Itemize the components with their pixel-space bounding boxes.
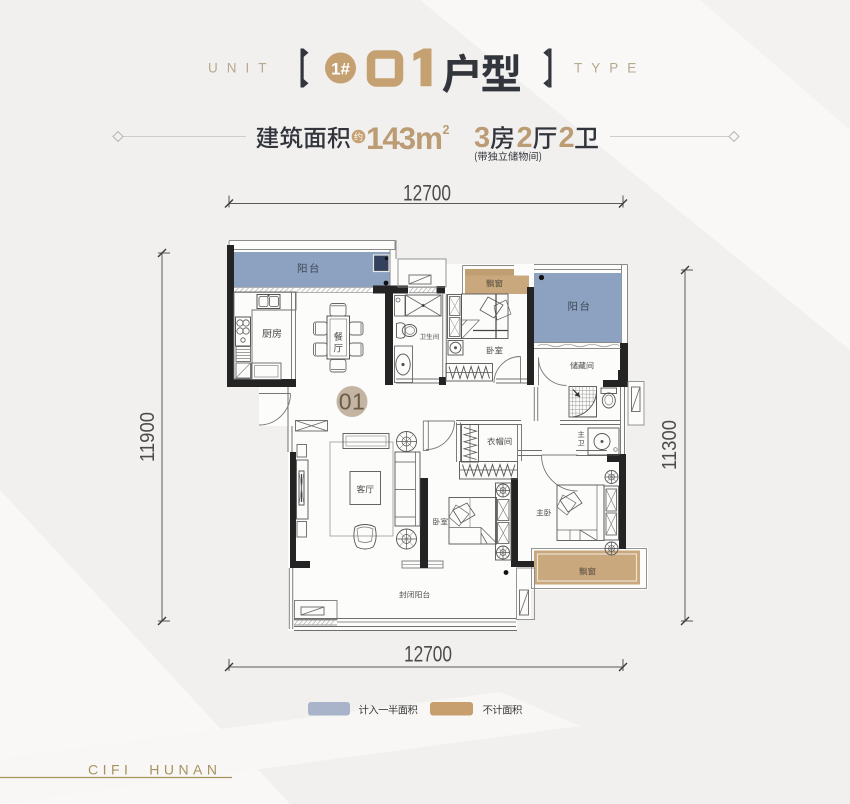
svg-text:01: 01 [339,389,366,415]
svg-text:2: 2 [443,123,450,137]
svg-text:CIFI HUNAN: CIFI HUNAN [88,762,222,778]
svg-text:2: 2 [517,122,533,154]
svg-text:12700: 12700 [403,181,451,206]
svg-text:2: 2 [559,122,575,154]
svg-text:11900: 11900 [137,412,159,462]
svg-text:12700: 12700 [404,642,452,667]
svg-text:11300: 11300 [659,420,681,470]
svg-text:143m: 143m [366,120,442,156]
svg-text:TYPE: TYPE [574,61,645,76]
svg-text:UNIT: UNIT [208,61,276,76]
svg-text:1#: 1# [331,60,350,79]
svg-text:3: 3 [474,122,490,154]
